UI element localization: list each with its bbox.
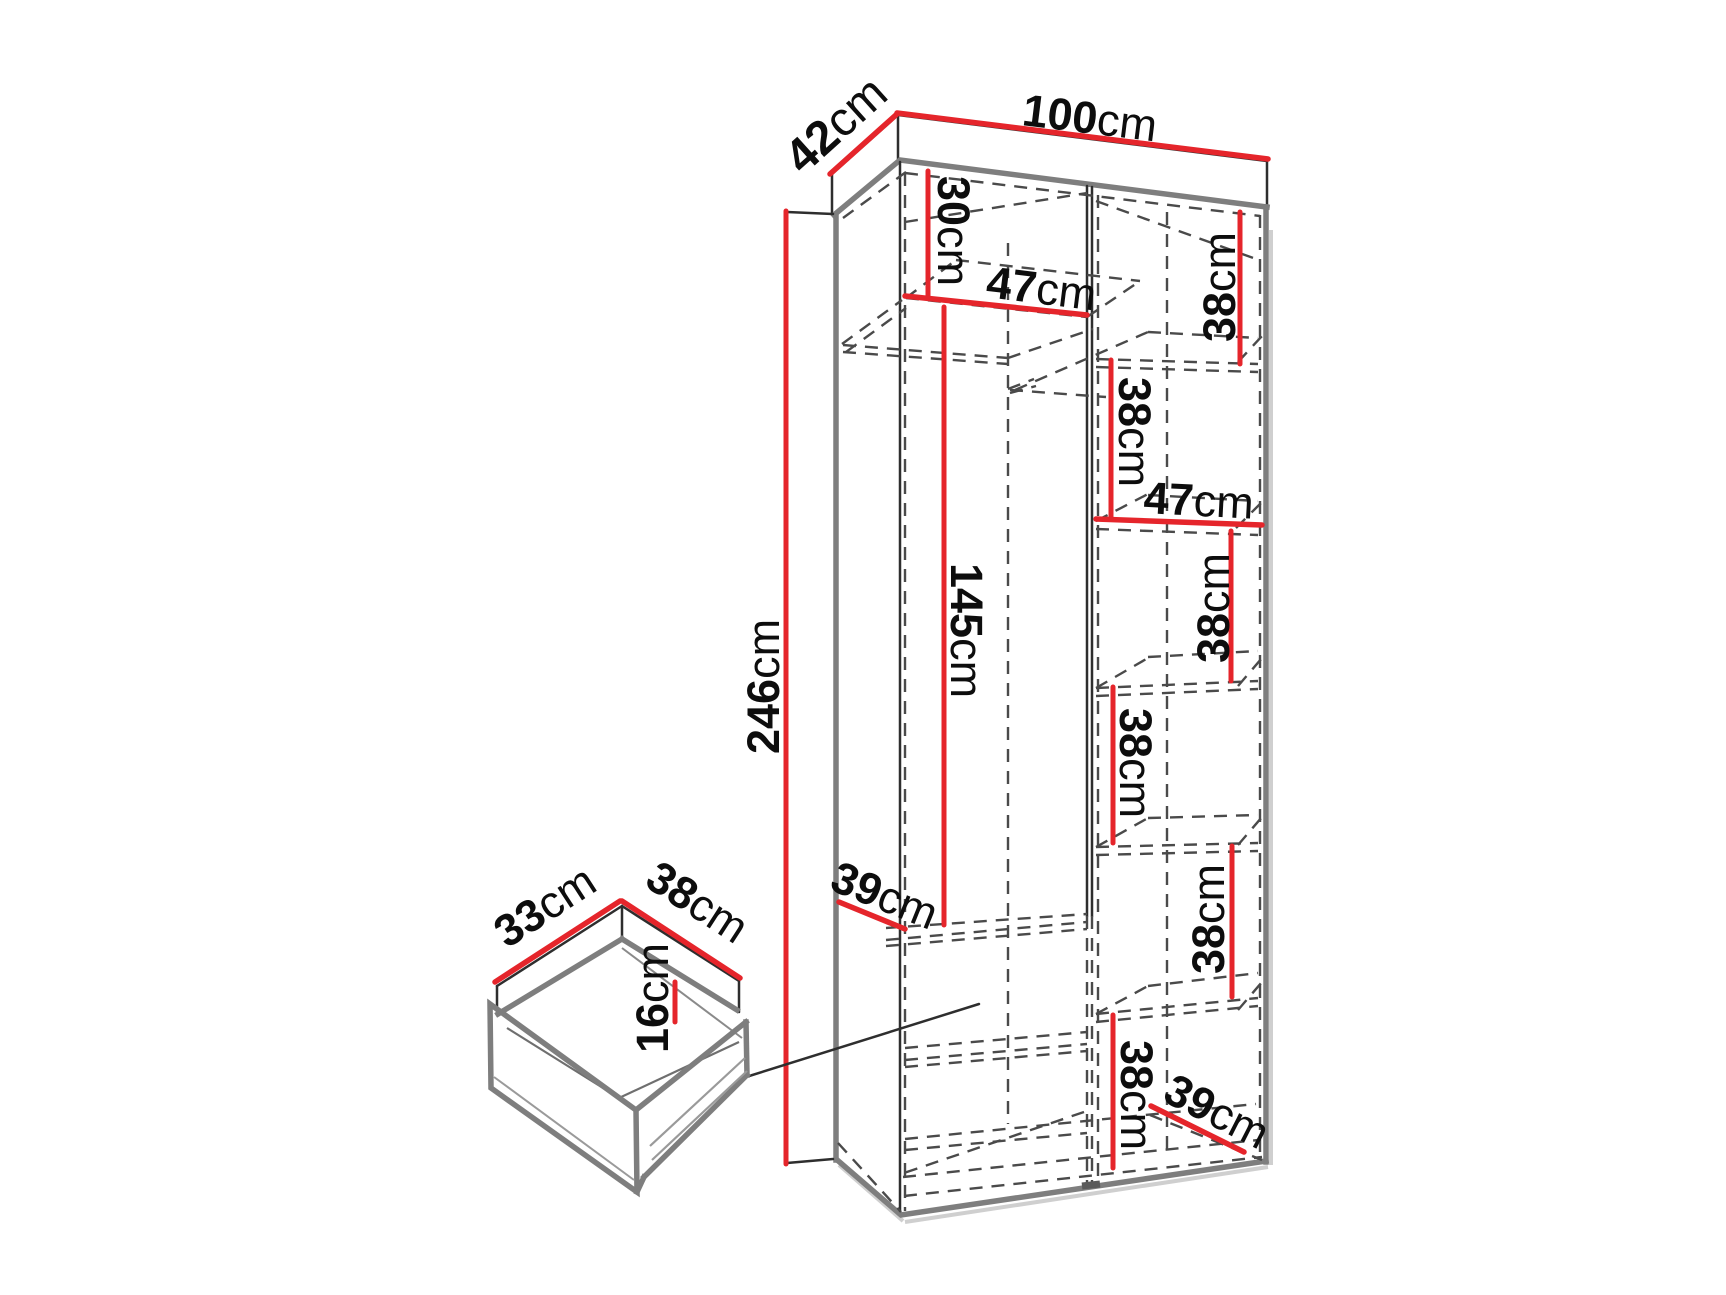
svg-text:38cm: 38cm — [1109, 377, 1160, 487]
svg-text:145cm: 145cm — [941, 563, 992, 698]
svg-text:100cm: 100cm — [1020, 84, 1160, 151]
svg-text:38cm: 38cm — [1111, 1040, 1162, 1150]
svg-text:38cm: 38cm — [638, 851, 758, 954]
svg-text:47cm: 47cm — [984, 256, 1099, 320]
svg-text:39cm: 39cm — [824, 851, 945, 940]
svg-text:16cm: 16cm — [627, 943, 678, 1053]
svg-text:38cm: 38cm — [1110, 708, 1161, 818]
svg-text:38cm: 38cm — [1188, 553, 1239, 663]
svg-text:30cm: 30cm — [928, 176, 979, 286]
svg-text:246cm: 246cm — [738, 619, 789, 754]
svg-text:38cm: 38cm — [1183, 864, 1234, 974]
svg-text:38cm: 38cm — [1194, 232, 1245, 342]
svg-text:33cm: 33cm — [485, 855, 605, 958]
svg-text:47cm: 47cm — [1142, 472, 1255, 529]
